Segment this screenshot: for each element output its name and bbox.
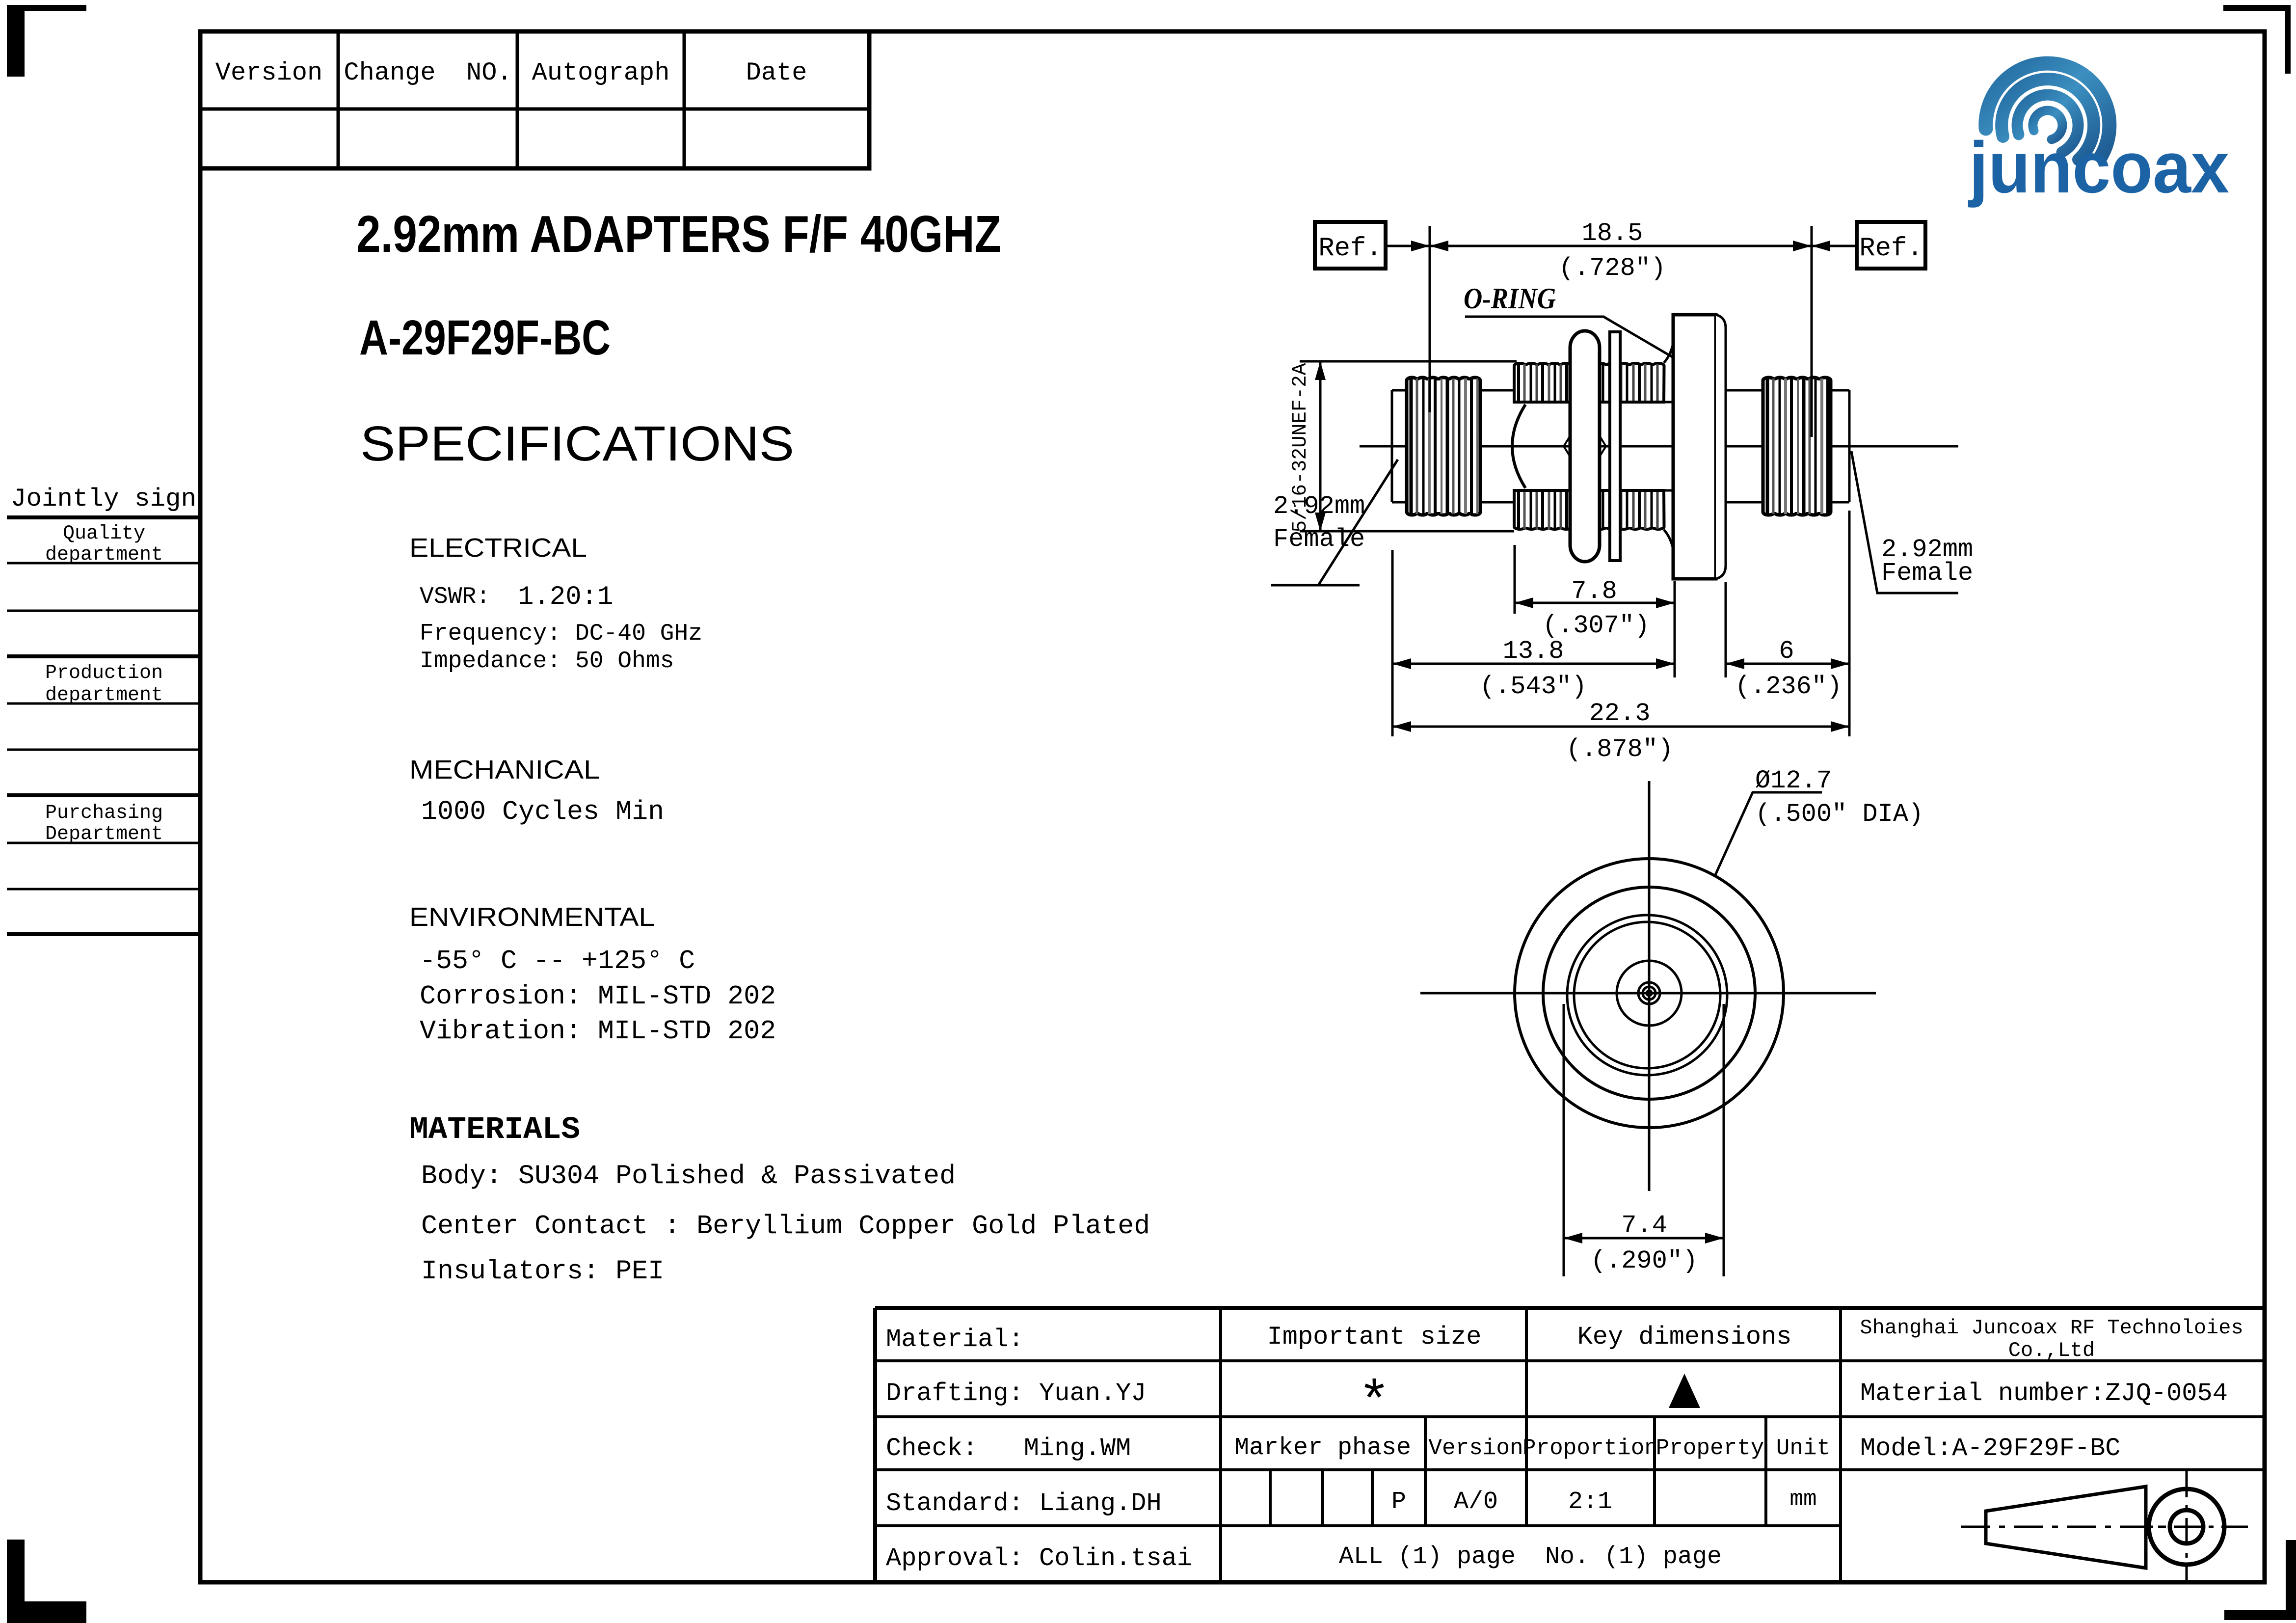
svg-text:(.307″): (.307″) [1543,611,1650,640]
svg-text:Approval: Colin.tsai: Approval: Colin.tsai [886,1544,1192,1573]
svg-text:Co.,Ltd: Co.,Ltd [2008,1339,2095,1362]
svg-text:1000 Cycles Min: 1000 Cycles Min [421,796,664,827]
svg-text:Jointly sign: Jointly sign [11,485,196,514]
svg-text:Version: Version [1428,1435,1523,1461]
svg-text:*: * [1358,1373,1390,1434]
svg-text:ENVIRONMENTAL: ENVIRONMENTAL [409,902,655,932]
svg-text:Body: SU304 Polished & Passiva: Body: SU304 Polished & Passivated [421,1161,956,1191]
svg-text:Change NO.: Change NO. [344,58,512,87]
svg-text:Property: Property [1656,1435,1764,1461]
svg-text:MECHANICAL: MECHANICAL [409,755,600,784]
svg-text:Corrosion: MIL-STD 202: Corrosion: MIL-STD 202 [420,981,776,1012]
svg-text:MATERIALS: MATERIALS [409,1112,580,1148]
svg-text:6: 6 [1779,637,1794,666]
svg-text:A-29F29F-BC: A-29F29F-BC [359,310,611,365]
svg-text:2:1: 2:1 [1568,1488,1612,1516]
svg-text:Material:: Material: [886,1325,1024,1354]
svg-text:Material number:ZJQ-0054: Material number:ZJQ-0054 [1860,1379,2228,1408]
svg-text:7.4: 7.4 [1621,1211,1667,1240]
svg-text:Center Contact : Beryllium Cop: Center Contact : Beryllium Copper Gold P… [421,1211,1150,1242]
svg-text:(.543″): (.543″) [1480,672,1587,701]
svg-text:Production: Production [45,662,163,684]
svg-text:18.5: 18.5 [1582,219,1643,248]
svg-text:Shanghai Juncoax RF Technoloie: Shanghai Juncoax RF Technoloies [1860,1316,2243,1340]
svg-text:Female: Female [1273,525,1365,554]
svg-text:Ref.: Ref. [1859,234,1923,264]
svg-text:Marker phase: Marker phase [1234,1434,1411,1462]
svg-text:Ø12.7: Ø12.7 [1755,766,1832,795]
svg-text:Vibration: MIL-STD 202: Vibration: MIL-STD 202 [420,1016,776,1047]
svg-text:ALL (1) page No. (1) page: ALL (1) page No. (1) page [1339,1543,1722,1571]
svg-text:Impedance: 50 Ohms: Impedance: 50 Ohms [420,648,674,675]
svg-text:Female: Female [1881,559,1973,588]
svg-text:2.92mm ADAPTERS F/F 40GHZ: 2.92mm ADAPTERS F/F 40GHZ [356,205,1001,263]
svg-text:Quality: Quality [63,523,145,545]
svg-text:Proportion: Proportion [1522,1435,1658,1461]
svg-text:department: department [45,544,163,566]
svg-text:Key dimensions: Key dimensions [1577,1323,1792,1352]
svg-text:ELECTRICAL: ELECTRICAL [409,533,587,563]
svg-text:department: department [45,684,163,706]
svg-text:A/0: A/0 [1454,1488,1498,1516]
svg-text:mm: mm [1789,1487,1816,1512]
svg-text:Date: Date [746,58,807,87]
svg-text:VSWR:: VSWR: [420,584,490,610]
svg-text:juncoax: juncoax [1968,127,2229,208]
svg-text:Standard: Liang.DH: Standard: Liang.DH [886,1489,1162,1518]
svg-text:Purchasing: Purchasing [45,802,163,824]
svg-text:(.290″): (.290″) [1591,1246,1698,1275]
svg-text:Frequency: DC-40 GHz: Frequency: DC-40 GHz [420,621,702,647]
svg-text:Insulators: PEI: Insulators: PEI [421,1256,664,1287]
svg-text:Unit: Unit [1776,1435,1830,1461]
svg-text:7.8: 7.8 [1571,577,1617,606]
svg-text:Check: Ming.WM: Check: Ming.WM [886,1434,1131,1463]
svg-text:SPECIFICATIONS: SPECIFICATIONS [360,416,794,471]
svg-text:(.236″): (.236″) [1735,672,1842,701]
svg-text:P: P [1391,1488,1406,1516]
svg-text:2.92mm: 2.92mm [1273,492,1365,521]
svg-text:22.3: 22.3 [1589,699,1651,728]
svg-text:Model:A-29F29F-BC: Model:A-29F29F-BC [1860,1434,2121,1463]
svg-text:-55° C -- +125° C: -55° C -- +125° C [420,946,695,976]
svg-text:Important size: Important size [1267,1323,1482,1352]
svg-text:(.878″): (.878″) [1566,735,1673,764]
svg-text:O-RING: O-RING [1464,282,1556,315]
svg-text:Drafting: Yuan.YJ: Drafting: Yuan.YJ [886,1379,1147,1408]
svg-text:Ref.: Ref. [1318,234,1382,264]
svg-text:Version: Version [215,58,322,87]
svg-text:(.728″): (.728″) [1559,254,1666,283]
svg-text:(.500″ DIA): (.500″ DIA) [1755,800,1923,829]
svg-text:Department: Department [45,823,163,845]
svg-text:1.20:1: 1.20:1 [518,582,613,612]
svg-text:Autograph: Autograph [532,58,670,87]
svg-text:13.8: 13.8 [1503,637,1564,666]
